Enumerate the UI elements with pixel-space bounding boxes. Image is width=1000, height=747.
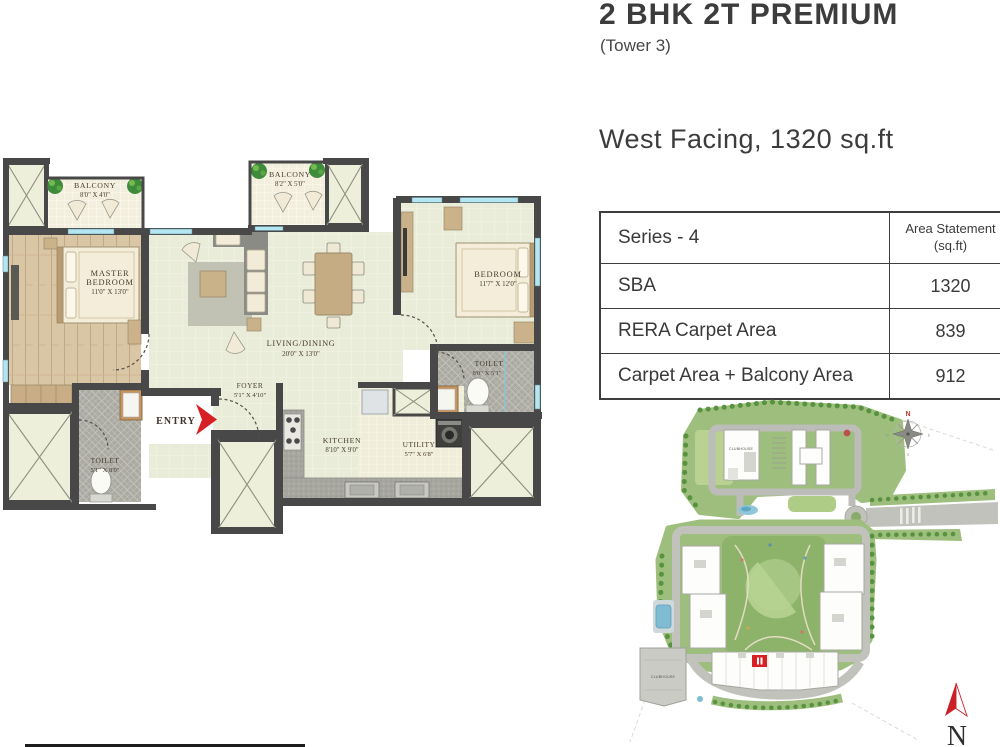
- balcony2-plant-icon-2: [309, 162, 325, 178]
- toilet-right-dims: 8'0" X 5'1": [472, 370, 501, 377]
- living-dining-dims: 20'0" X 13'0": [282, 350, 320, 358]
- master-dresser: [128, 320, 141, 344]
- table-row: SBA 1320: [600, 264, 1000, 309]
- balcony1-dims: 8'0" X 4'0": [80, 192, 110, 199]
- balcony2-plant-icon: [251, 163, 267, 179]
- master-bedroom-dims: 11'0" X 13'0": [91, 288, 129, 296]
- series-header-cell: Series - 4: [600, 212, 890, 264]
- balcony2-label: BALCONY: [269, 170, 311, 179]
- entry-label: ENTRY: [156, 416, 196, 427]
- red-tree-icon: [844, 430, 851, 437]
- balcony1-plant-icon: [47, 178, 63, 194]
- table-row: RERA Carpet Area 839: [600, 309, 1000, 354]
- fridge-icon: [362, 390, 388, 414]
- bedroom-label: BEDROOM: [474, 270, 521, 279]
- central-park: [722, 536, 826, 652]
- south-pool-dot: [697, 696, 703, 702]
- foyer-dims: 5'1" X 4'10": [234, 392, 267, 399]
- area-statement-line2: (sq.ft): [891, 238, 1000, 255]
- compass-e-label: E: [928, 433, 931, 438]
- foyer-label: FOYER: [237, 381, 264, 390]
- south-tower-building: [712, 652, 838, 690]
- washing-machine-icon: [436, 419, 463, 447]
- north-arrow-icon: N: [945, 683, 967, 747]
- bedroom-wardrobe: [514, 322, 536, 343]
- master-side-table: [44, 238, 57, 249]
- clubhouse-top-building: CLUBHOUSE: [724, 430, 759, 480]
- bedroom-dims: 11'7" X 12'0": [479, 280, 517, 288]
- site-map: CLUBHOUSE: [620, 390, 1000, 747]
- utility-label: UTILITY: [403, 440, 436, 449]
- master-bedroom-label-1: MASTER: [91, 269, 130, 278]
- sitemap-south-cluster: CLUBHOUSE: [640, 648, 860, 708]
- shaft-bottom-left: [7, 412, 72, 502]
- shaft-bottom-right: [469, 426, 535, 499]
- row-label: RERA Carpet Area: [600, 309, 890, 354]
- coffee-table-icon: [200, 271, 226, 297]
- brochure-page: { "header": { "title": "2 BHK 2T PREMIUM…: [0, 0, 1000, 747]
- area-statement-line1: Area Statement: [891, 221, 1000, 238]
- shaft-center: [218, 440, 276, 529]
- clubhouse-top-label: CLUBHOUSE: [729, 447, 754, 451]
- shaft-top-center: [327, 163, 363, 225]
- row-value: 1320: [890, 264, 1000, 309]
- living-side-table: [247, 318, 261, 331]
- master-bedroom-label-2: BEDROOM: [86, 278, 133, 287]
- row-label: SBA: [600, 264, 890, 309]
- shaft-top-left: [7, 163, 46, 228]
- balcony1-label: BALCONY: [74, 181, 116, 190]
- bedroom-desk: [444, 207, 462, 230]
- kitchen-dims: 8'10" X 9'0": [325, 447, 359, 454]
- area-statement-table: Series - 4 Area Statement (sq.ft) SBA 13…: [599, 211, 1000, 400]
- right-tower-building: [820, 544, 864, 650]
- tv-unit-icon: [401, 212, 413, 292]
- west-pool: [653, 600, 674, 633]
- table-header-row: Series - 4 Area Statement (sq.ft): [600, 212, 1000, 264]
- master-wardrobe-bottom: [11, 385, 72, 404]
- toilet-right-label: TOILET: [475, 359, 504, 368]
- clubhouse-bottom-label: CLUBHOUSE: [651, 675, 676, 679]
- kitchen-label: KITCHEN: [323, 436, 361, 445]
- compass-s-label: S: [907, 452, 910, 457]
- balcony2-dims: 8'2" X 5'0": [275, 181, 305, 188]
- living-dining-label: LIVING/DINING: [267, 339, 336, 348]
- north-arrow-label: N: [947, 721, 967, 747]
- master-wardrobe-left: [11, 265, 19, 320]
- toilet-left-label: TOILET: [91, 456, 120, 465]
- compass-w-label: W: [885, 433, 889, 438]
- utility-dims: 5'7" X 6'8": [404, 451, 433, 458]
- clubhouse-bottom-building: CLUBHOUSE: [640, 648, 686, 706]
- tower-subtitle: (Tower 3): [600, 36, 671, 56]
- compass-n-label: N: [905, 411, 910, 418]
- balcony1-plant-icon-2: [127, 178, 143, 194]
- facing-area-heading: West Facing, 1320 sq.ft: [599, 124, 894, 155]
- row-value: 839: [890, 309, 1000, 354]
- shaft-utility: [394, 388, 433, 415]
- floorplan: BALCONY 8'0" X 4'0" BALCONY 8'2" X 5'0" …: [0, 0, 600, 747]
- area-statement-header-cell: Area Statement (sq.ft): [890, 212, 1000, 264]
- toilet-left-dims: 5'1" X 8'0": [90, 467, 119, 474]
- page-title: 2 BHK 2T PREMIUM: [599, 0, 898, 32]
- highlighted-unit-marker: [752, 655, 767, 667]
